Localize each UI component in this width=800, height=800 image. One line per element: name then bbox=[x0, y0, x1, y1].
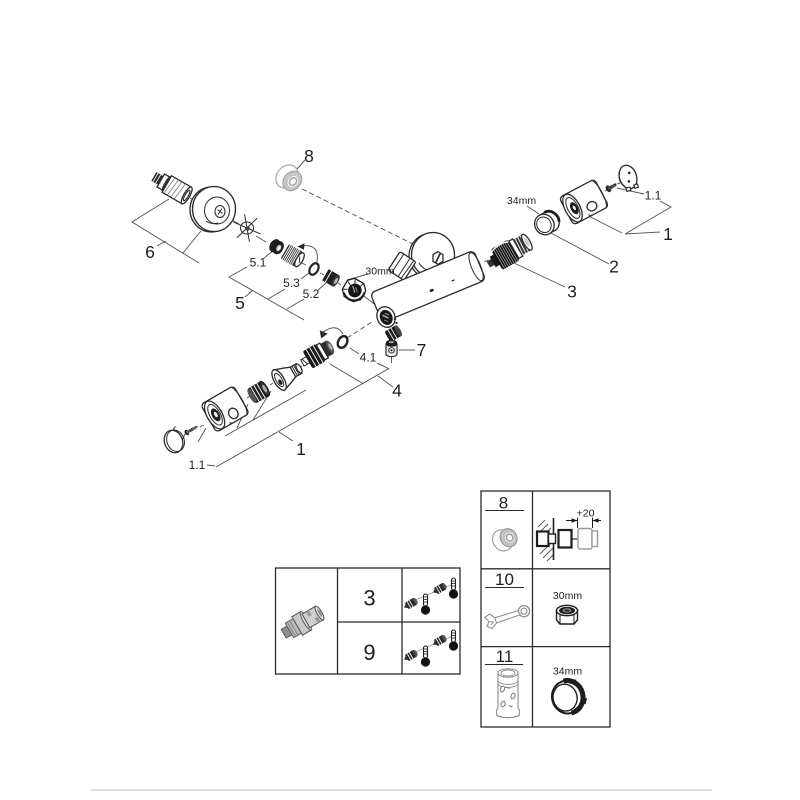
svg-text:3: 3 bbox=[567, 282, 577, 302]
svg-text:9: 9 bbox=[363, 640, 375, 665]
svg-text:5.2: 5.2 bbox=[303, 287, 320, 301]
svg-text:1: 1 bbox=[296, 439, 306, 459]
svg-text:7: 7 bbox=[417, 340, 427, 360]
svg-text:6: 6 bbox=[145, 242, 155, 262]
svg-text:4.1: 4.1 bbox=[360, 351, 377, 365]
svg-text:5.1: 5.1 bbox=[250, 256, 267, 270]
svg-text:30mm: 30mm bbox=[365, 266, 394, 278]
svg-text:11: 11 bbox=[496, 647, 514, 666]
svg-text:4: 4 bbox=[392, 381, 402, 401]
svg-text:1.1: 1.1 bbox=[189, 458, 206, 472]
svg-text:1.1: 1.1 bbox=[645, 189, 662, 203]
svg-text:10: 10 bbox=[495, 570, 514, 589]
svg-text:30mm: 30mm bbox=[553, 590, 582, 602]
svg-text:3: 3 bbox=[363, 586, 375, 611]
svg-text:34mm: 34mm bbox=[553, 666, 582, 678]
svg-text:1: 1 bbox=[663, 224, 673, 244]
svg-text:5.3: 5.3 bbox=[283, 276, 300, 290]
svg-text:2: 2 bbox=[609, 257, 619, 277]
svg-text:+20: +20 bbox=[577, 508, 595, 520]
svg-text:8: 8 bbox=[304, 146, 314, 166]
svg-text:8: 8 bbox=[499, 494, 508, 513]
svg-text:34mm: 34mm bbox=[507, 195, 536, 207]
svg-text:5: 5 bbox=[235, 293, 245, 313]
